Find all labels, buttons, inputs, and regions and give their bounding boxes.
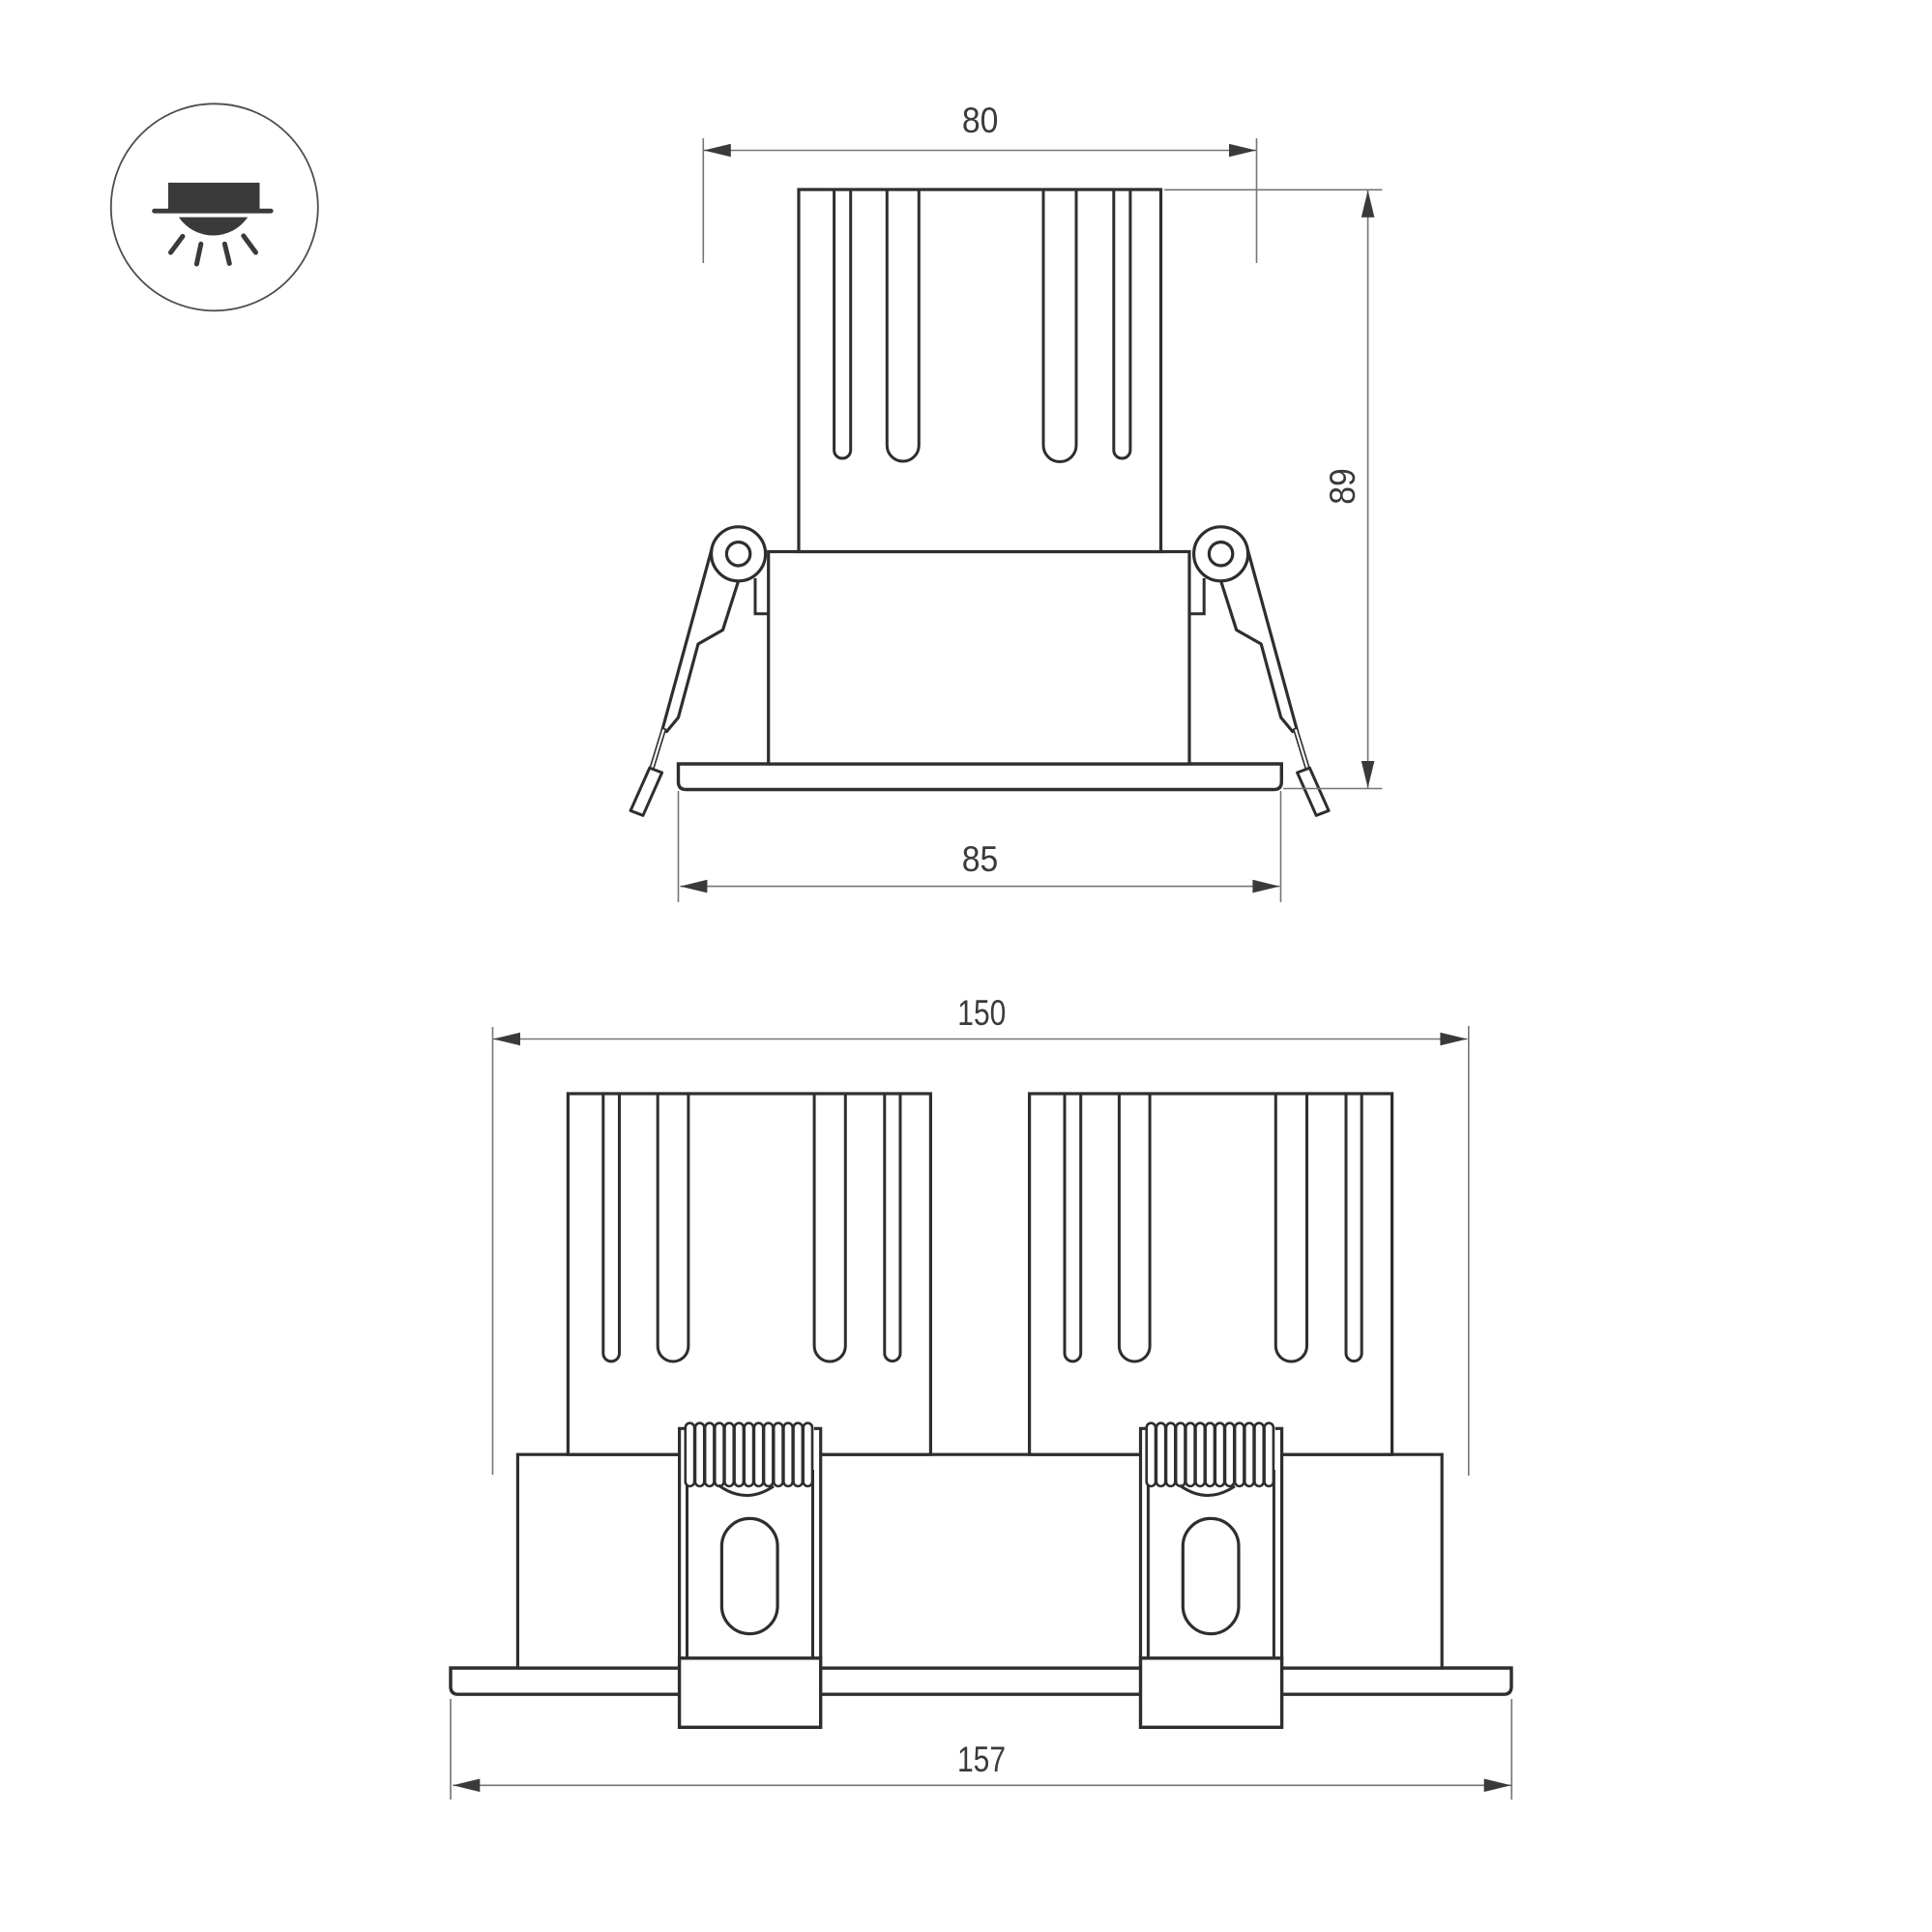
svg-text:80: 80 — [962, 100, 999, 140]
svg-text:150: 150 — [957, 992, 1006, 1033]
svg-text:85: 85 — [962, 838, 999, 879]
svg-text:157: 157 — [957, 1739, 1006, 1779]
svg-text:89: 89 — [1322, 468, 1362, 505]
